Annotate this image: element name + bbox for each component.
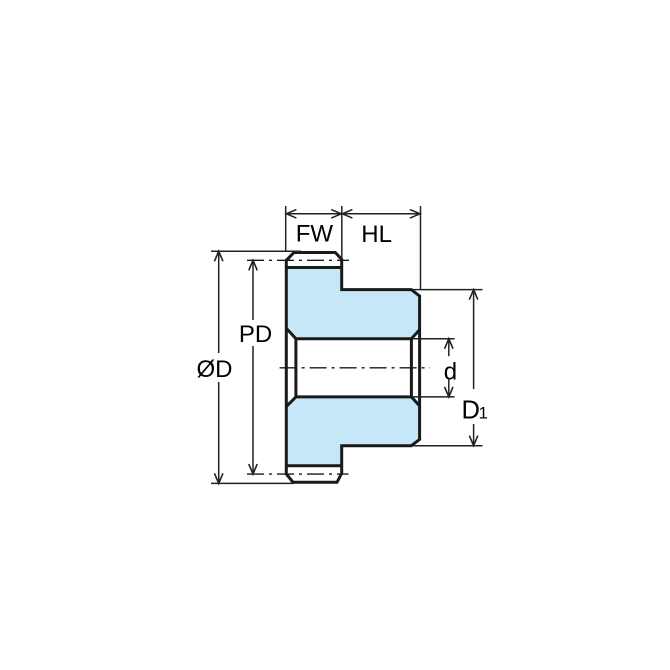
svg-text:1: 1 (479, 403, 488, 422)
svg-text:FW: FW (296, 221, 334, 248)
svg-text:d: d (444, 358, 457, 385)
svg-text:PD: PD (239, 321, 272, 348)
svg-text:HL: HL (361, 221, 392, 248)
svg-text:D: D (462, 396, 480, 424)
svg-text:ØD: ØD (197, 356, 233, 383)
